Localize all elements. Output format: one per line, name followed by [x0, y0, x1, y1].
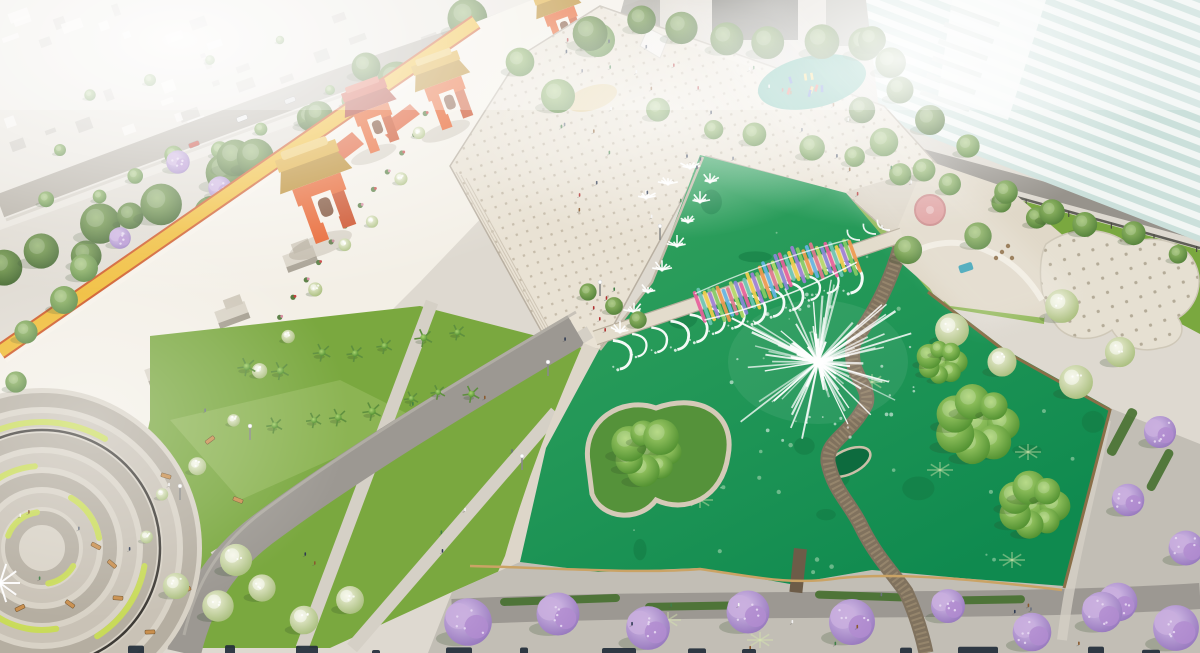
aerial-park-render: [0, 0, 1200, 653]
scene-canvas: [0, 0, 1200, 653]
